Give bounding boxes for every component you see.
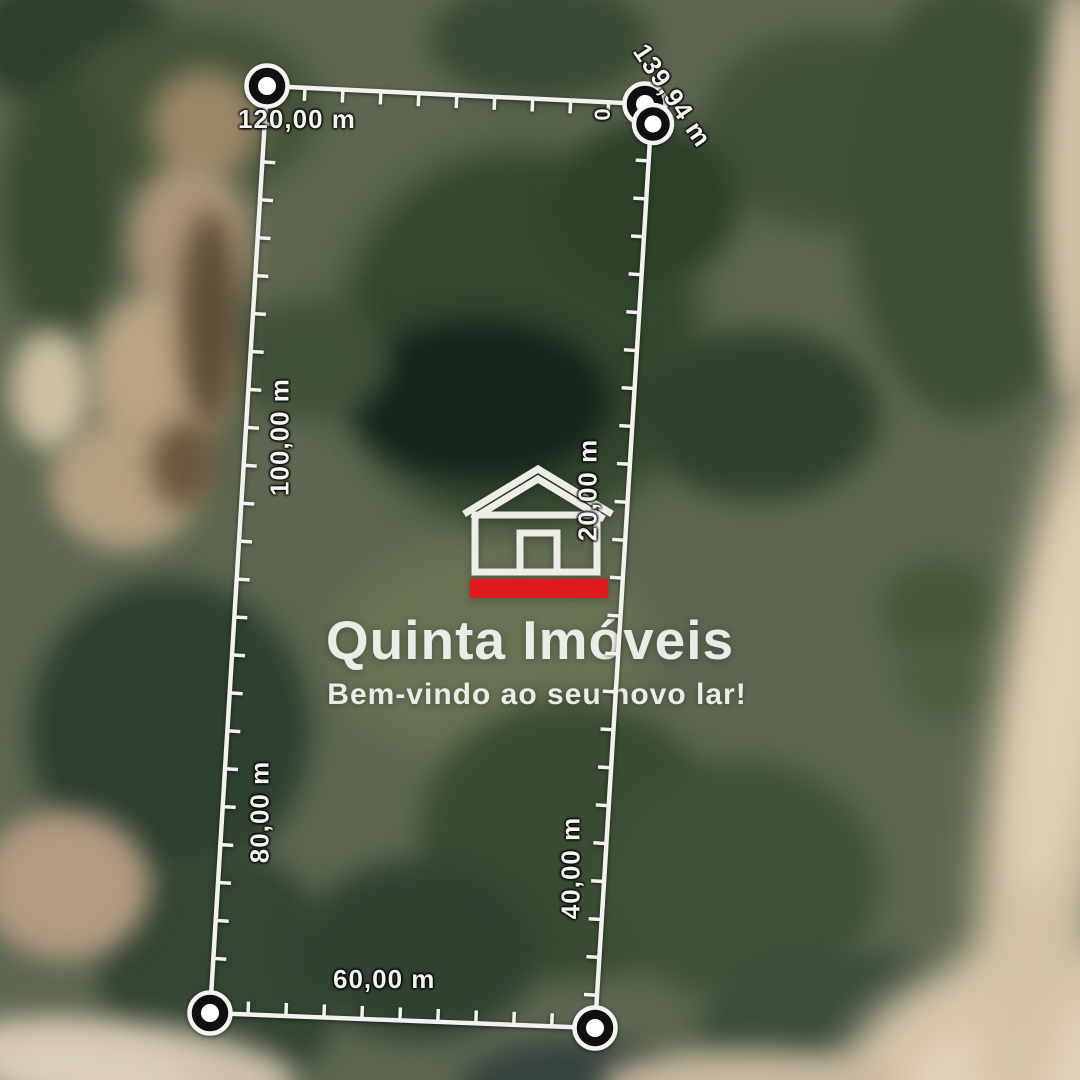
measurement-label-right-lower: 40,00 m bbox=[556, 817, 587, 919]
corner-marker-top-left bbox=[247, 66, 288, 107]
measurement-overlay bbox=[0, 0, 1080, 1080]
measurement-label-right-upper: 20,00 m bbox=[573, 439, 604, 541]
edge-bottom bbox=[210, 1013, 595, 1028]
edge-right bbox=[595, 123, 651, 1028]
measurement-label-left-lower: 80,00 m bbox=[245, 761, 276, 863]
measurement-stray-digit: 0 bbox=[590, 107, 616, 120]
measurement-label-bottom: 60,00 m bbox=[333, 964, 435, 995]
corner-marker-bottom-right bbox=[575, 1008, 616, 1049]
satellite-photo-scene: Quinta Imóveis Bem-vindo ao seu novo lar… bbox=[0, 0, 1080, 1080]
corner-marker-bottom-left bbox=[190, 993, 231, 1034]
measurement-label-top: 120,00 m bbox=[238, 104, 356, 135]
edge-left bbox=[210, 86, 267, 1013]
measurement-label-left-upper: 100,00 m bbox=[265, 378, 296, 496]
